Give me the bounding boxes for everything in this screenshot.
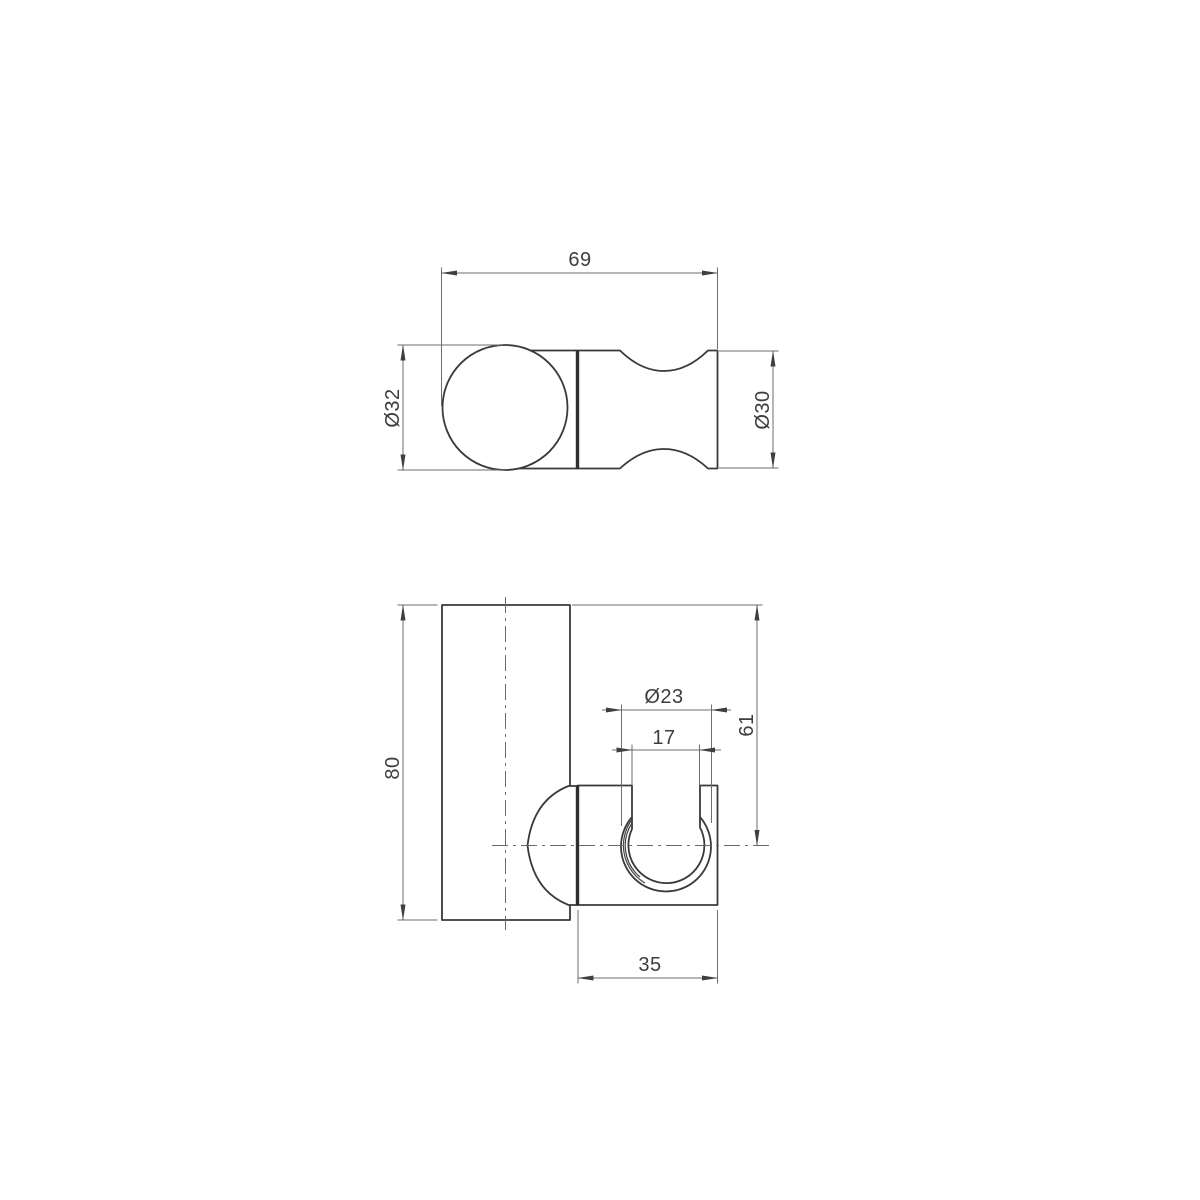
top-view: 69 Ø32 Ø30: [382, 249, 779, 470]
dim-label-center-offset: 61: [736, 713, 758, 736]
cup-inner-wall: [628, 817, 704, 883]
dimension-cup-opening-width: 17: [612, 727, 721, 786]
dimension-bracket-depth: 35: [578, 910, 718, 984]
dim-label-overall-width: 69: [568, 249, 591, 271]
front-view: 80 61 Ø23 17: [382, 597, 770, 984]
dim-label-cup-outer-diameter: Ø23: [644, 686, 683, 708]
dim-label-body-diameter: Ø30: [752, 390, 774, 429]
dimension-plate-height: 80: [382, 605, 438, 920]
dim-label-plate-height: 80: [382, 756, 404, 779]
dimension-cup-outer-diameter: Ø23: [602, 686, 731, 826]
dimension-body-diameter: Ø30: [719, 351, 779, 468]
dim-label-ball-diameter: Ø32: [382, 388, 404, 427]
dim-label-cup-opening-width: 17: [652, 727, 675, 749]
ball-joint-circle: [443, 345, 568, 470]
dim-label-bracket-depth: 35: [638, 954, 661, 976]
shower-holder-dimension-drawing: 69 Ø32 Ø30: [0, 0, 1200, 1200]
technical-drawing-canvas: 69 Ø32 Ø30: [0, 0, 1200, 1200]
